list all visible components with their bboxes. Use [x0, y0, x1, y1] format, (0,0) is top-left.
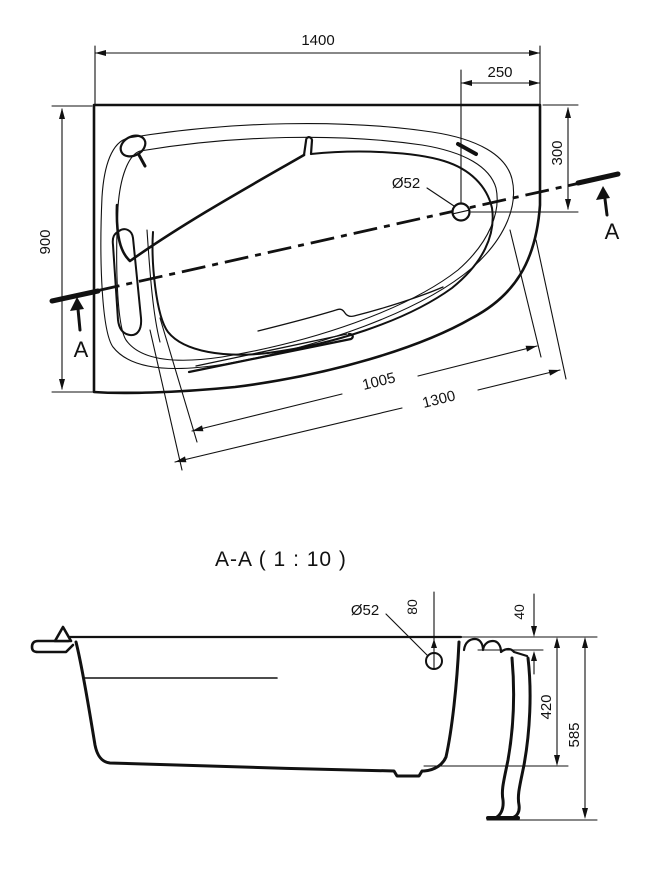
section-view: A-A ( 1 : 10 ): [32, 548, 597, 820]
drain-knob-stem: [139, 155, 145, 166]
section-marker-left: A: [74, 337, 89, 362]
tub-shell-section: [76, 642, 459, 776]
arrowhead: [59, 379, 65, 390]
section-arrowhead-right: [596, 186, 610, 200]
rim-bracket-left: [32, 641, 73, 652]
arrowhead: [554, 755, 560, 766]
arrowhead: [175, 456, 186, 462]
apron-inner-line: [495, 658, 514, 818]
bowl-outline: [153, 152, 493, 355]
drain-label-leader-plan: [427, 188, 454, 206]
arrowhead: [526, 346, 537, 352]
arrowhead: [565, 199, 571, 210]
arrowhead: [549, 370, 560, 376]
rim-cut-triangle: [55, 627, 71, 641]
apron-top-profile: [464, 639, 527, 656]
floor-strip-top: [196, 334, 347, 366]
dim-label-1005: 1005: [361, 369, 397, 394]
ext-line-1300-left: [150, 330, 182, 470]
drain-label-section: Ø52: [351, 602, 379, 619]
arrowhead: [565, 107, 571, 118]
ext-line-1005-right: [510, 230, 541, 357]
backrest-jog: [304, 137, 312, 155]
section-title: A-A ( 1 : 10 ): [215, 548, 347, 571]
section-cut-end-right: [578, 174, 618, 183]
dim-label-40: 40: [511, 604, 527, 620]
arrowhead: [531, 626, 537, 637]
arrowhead: [59, 108, 65, 119]
dim-label-80: 80: [404, 599, 420, 615]
drain-label-leader-section: [386, 614, 427, 655]
drawing-page: 1400 250 300 900 1005 1300 Ø52 A A A-A (…: [0, 0, 651, 876]
tub-rim-outer-line: [101, 124, 514, 369]
tub-rim-inner-line: [117, 137, 497, 360]
dim-label-420: 420: [538, 694, 555, 719]
ext-line-1005-left: [160, 318, 197, 442]
section-cut-line: [96, 183, 580, 291]
section-arrow-tail-right: [605, 199, 607, 215]
arrowhead: [582, 808, 588, 819]
arrowhead: [431, 639, 437, 648]
dim-line-1005-b: [418, 346, 537, 376]
dim-label-1400: 1400: [301, 32, 334, 49]
arrowhead: [582, 637, 588, 648]
dim-label-300: 300: [549, 140, 566, 165]
dim-line-1300-b: [478, 370, 560, 390]
dim-label-250: 250: [487, 64, 512, 81]
dim-label-1300: 1300: [421, 387, 457, 412]
arrowhead: [192, 425, 203, 431]
arrowhead: [529, 50, 540, 56]
section-marker-right: A: [605, 219, 620, 244]
section-arrow-tail-left: [78, 309, 80, 330]
dim-label-900: 900: [37, 229, 54, 254]
technical-drawing: 1400 250 300 900 1005 1300 Ø52 A A A-A (…: [0, 0, 651, 876]
arrowhead: [531, 651, 537, 661]
arrowhead: [95, 50, 106, 56]
dim-line-1005-a: [192, 394, 342, 431]
section-cut-end-left: [52, 291, 98, 301]
backrest-edge: [117, 155, 304, 261]
dim-line-1300-a: [175, 408, 402, 462]
dim-label-585: 585: [566, 722, 583, 747]
ext-line-1300-right: [536, 240, 566, 379]
arrowhead: [461, 80, 472, 86]
drain-label-plan: Ø52: [392, 175, 420, 192]
arrowhead: [554, 637, 560, 648]
arrowhead: [529, 80, 540, 86]
plan-view: 1400 250 300 900 1005 1300 Ø52 A A: [37, 32, 620, 470]
